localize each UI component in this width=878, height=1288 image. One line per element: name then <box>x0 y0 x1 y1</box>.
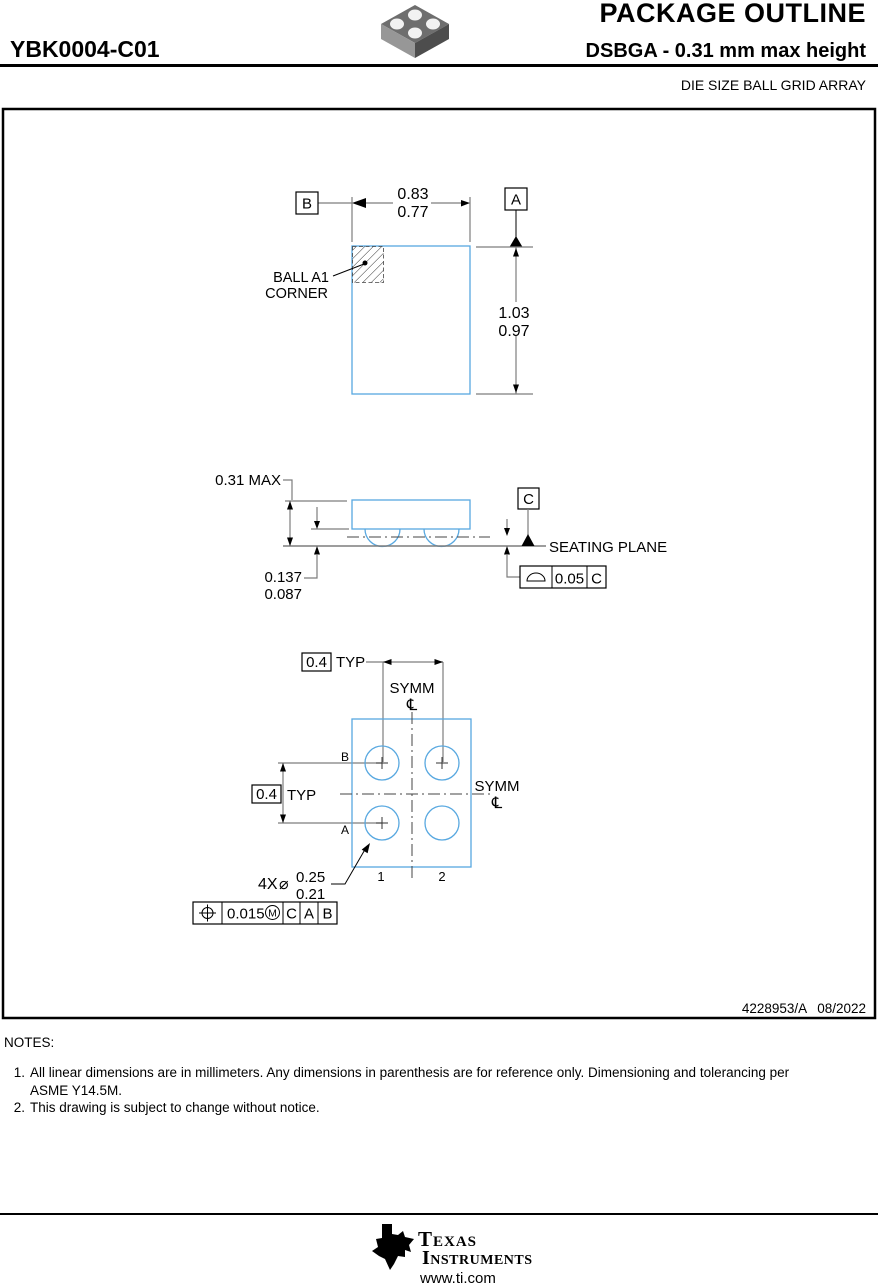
position-tolerance-value: 0.015 <box>227 906 265 923</box>
datum-c-label: C <box>523 491 534 508</box>
note-text: All linear dimensions are in millimeters… <box>30 1064 820 1099</box>
pitch-x-typ: TYP <box>336 654 365 671</box>
seating-plane-label: SEATING PLANE <box>549 539 667 556</box>
arrowhead <box>314 546 320 555</box>
pitch-y-typ: TYP <box>287 787 316 804</box>
ball-dia-min: 0.21 <box>296 886 325 903</box>
brand-instruments: Instruments <box>422 1249 533 1268</box>
mmc-letter: M <box>268 908 277 920</box>
datum-a-label: A <box>511 192 521 209</box>
notes-heading: NOTES: <box>4 1035 54 1050</box>
solder-ball-profile <box>424 529 459 547</box>
height-dim-max: 1.03 <box>498 305 529 322</box>
arrowhead <box>504 546 510 555</box>
col-label-2: 2 <box>438 869 445 884</box>
position-fcf: 0.015 M C A B <box>193 902 337 924</box>
arrowhead <box>362 843 370 853</box>
ti-monogram: ti <box>385 1237 396 1256</box>
coplanarity-fcf: 0.05 C <box>520 566 606 588</box>
arrowhead <box>435 659 444 665</box>
symm-label-top: SYMM <box>390 680 435 697</box>
side-view: 0.31 MAX 0.137 0.087 C SEATING PLANE <box>215 472 667 603</box>
datum-feature-triangle <box>522 534 535 546</box>
doc-number: 4228953/A <box>742 1001 807 1016</box>
centerline-symbol-icon: ℄ <box>491 795 503 812</box>
datum-arrowhead <box>352 198 366 208</box>
note-item: 2. This drawing is subject to change wit… <box>8 1099 828 1117</box>
note-number: 1. <box>8 1064 25 1099</box>
arrowhead <box>287 538 293 547</box>
standoff-dim-max: 0.137 <box>264 569 302 586</box>
ti-texas-logo-icon: ti <box>370 1224 414 1270</box>
standoff-dim-min: 0.087 <box>264 586 302 603</box>
position-datum-a: A <box>304 906 314 923</box>
note-item: 1. All linear dimensions are in millimet… <box>8 1064 828 1099</box>
drawing-doc-number: 4228953/A08/2022 <box>732 1001 866 1016</box>
ball-a1-corner-label: CORNER <box>265 286 328 302</box>
ball-dia-max: 0.25 <box>296 869 325 886</box>
package-side-outline <box>352 500 470 529</box>
top-view: BALL A1 CORNER 0.83 0.77 B A <box>265 186 533 394</box>
package-outline-page: PACKAGE OUTLINE YBK0004-C01 DSBGA - 0.31… <box>0 0 878 1288</box>
ball-a1-corner-label: BALL A1 <box>273 270 329 286</box>
note-text: This drawing is subject to change withou… <box>30 1099 820 1117</box>
footer-divider <box>0 1213 878 1215</box>
pitch-x-value: 0.4 <box>306 654 327 671</box>
datum-arrowhead <box>510 236 523 247</box>
bottom-view: 0.4 TYP SYMM ℄ 0.4 TYP <box>193 653 520 924</box>
solder-ball-profile <box>365 529 400 547</box>
note-number: 2. <box>8 1099 25 1117</box>
leader-line <box>331 846 367 884</box>
position-datum-b: B <box>322 906 332 923</box>
row-label-b: B <box>341 750 349 764</box>
height-dim-min: 0.97 <box>498 323 529 340</box>
arrowhead <box>504 528 510 536</box>
arrowhead <box>383 659 392 665</box>
datum-b-label: B <box>302 196 312 213</box>
arrowhead <box>513 385 519 394</box>
coplanarity-value: 0.05 <box>555 571 584 588</box>
arrowhead <box>314 521 320 529</box>
arrowhead <box>287 501 293 510</box>
ball-count: 4X <box>258 876 278 893</box>
coplanarity-datum: C <box>591 571 602 588</box>
notes-list: 1. All linear dimensions are in millimet… <box>8 1064 828 1117</box>
brand-wordmark: Texas Instruments <box>418 1229 533 1268</box>
ball-a1-corner-hatch <box>353 247 384 283</box>
doc-revision-date: 08/2022 <box>817 1001 866 1016</box>
position-datum-c: C <box>286 906 297 923</box>
arrowhead <box>461 200 470 207</box>
ball-a2 <box>425 806 459 840</box>
arrowhead <box>280 763 286 772</box>
diameter-symbol-icon: ⌀ <box>279 876 289 893</box>
symm-label-right: SYMM <box>475 778 520 795</box>
row-label-a: A <box>341 823 349 837</box>
arrowhead <box>280 815 286 824</box>
col-label-1: 1 <box>377 869 384 884</box>
brand-texas: Texas <box>418 1229 533 1249</box>
centerline-symbol-icon: ℄ <box>406 697 418 714</box>
width-dim-max: 0.83 <box>397 186 428 203</box>
width-dim-min: 0.77 <box>397 204 428 221</box>
pitch-y-value: 0.4 <box>256 786 277 803</box>
ti-website-url: www.ti.com <box>420 1270 496 1287</box>
arrowhead <box>513 248 519 257</box>
overall-height-dim: 0.31 MAX <box>215 472 281 489</box>
